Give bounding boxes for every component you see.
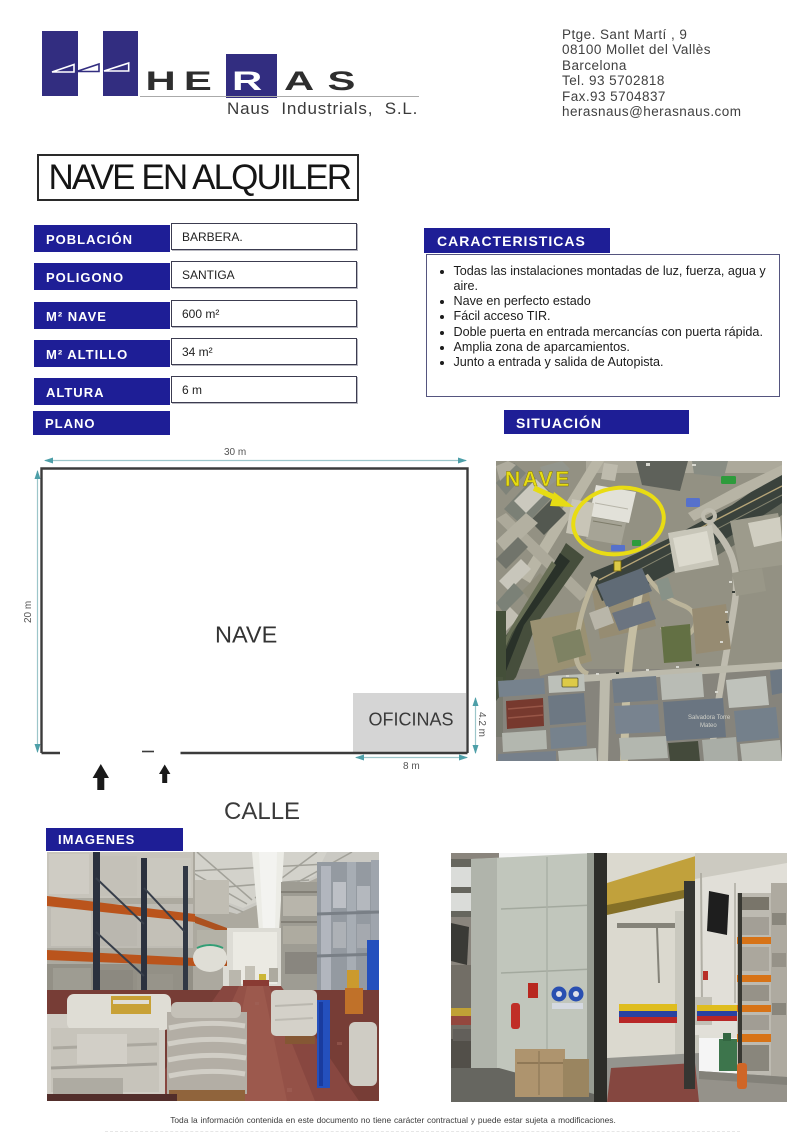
svg-text:E: E	[184, 66, 212, 96]
svg-text:H: H	[146, 66, 176, 96]
svg-text:30 m: 30 m	[224, 447, 246, 458]
svg-text:20 m: 20 m	[23, 601, 34, 623]
svg-text:NAVE: NAVE	[215, 622, 277, 648]
svg-text:8 m: 8 m	[403, 761, 420, 772]
svg-text:OFICINAS: OFICINAS	[369, 710, 454, 730]
svg-text:4.2 m: 4.2 m	[476, 712, 487, 737]
svg-text:S: S	[327, 66, 355, 96]
svg-text:Naus Industrials, S.L.: Naus Industrials, S.L.	[227, 99, 418, 118]
svg-text:R: R	[232, 66, 262, 96]
svg-text:A: A	[284, 66, 314, 96]
svg-text:CALLE: CALLE	[224, 798, 300, 825]
